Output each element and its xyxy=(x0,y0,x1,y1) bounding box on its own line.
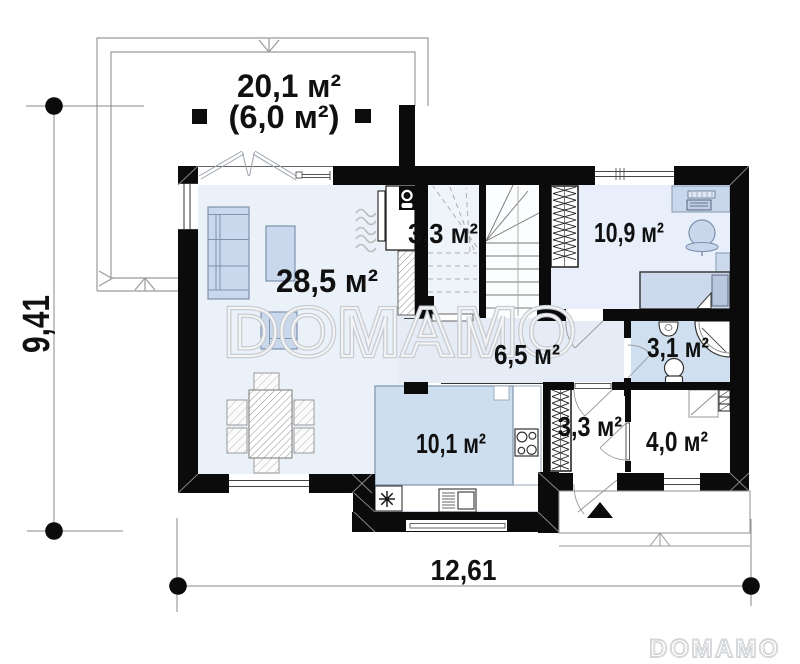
svg-text:12,61: 12,61 xyxy=(431,555,497,587)
svg-text:10,1 м²: 10,1 м² xyxy=(416,428,486,459)
svg-text:9,41: 9,41 xyxy=(16,295,58,353)
svg-text:4,0 м²: 4,0 м² xyxy=(646,426,708,457)
svg-text:3,1 м²: 3,1 м² xyxy=(647,332,709,363)
svg-text:DOMAMO: DOMAMO xyxy=(649,635,781,663)
svg-text:3,3 м²: 3,3 м² xyxy=(558,411,622,442)
svg-text:6,5 м²: 6,5 м² xyxy=(494,339,560,370)
svg-text:28,5 м²: 28,5 м² xyxy=(276,263,378,299)
svg-text:10,9 м²: 10,9 м² xyxy=(594,217,664,248)
svg-text:(6,0 м²): (6,0 м²) xyxy=(229,99,340,135)
svg-text:3,3 м²: 3,3 м² xyxy=(408,218,478,249)
